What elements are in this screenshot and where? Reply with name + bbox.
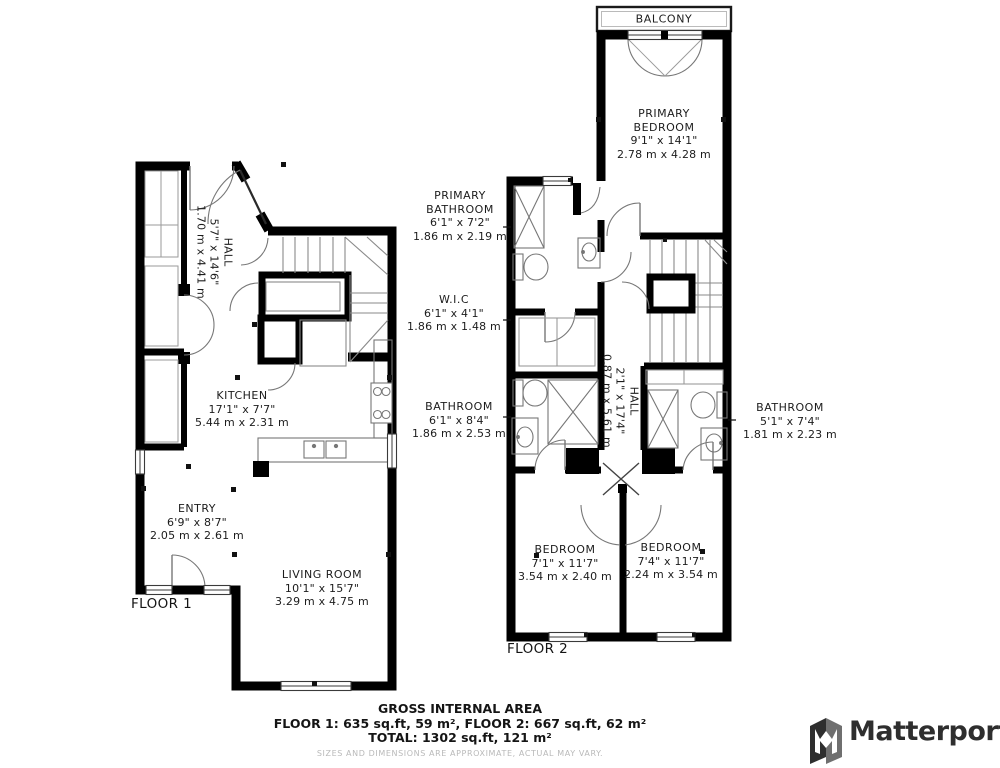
room-name: W.I.C xyxy=(407,293,501,307)
matterport-wordmark: Matterport xyxy=(849,716,1000,747)
room-label-hall-floor2: HALL 2'1" x 17'4" 0.87 m x 5.61 m xyxy=(600,341,641,461)
room-dim-imperial: 2'1" x 17'4" xyxy=(613,341,627,461)
room-dim-metric: 3.54 m x 2.40 m xyxy=(518,570,612,584)
room-label-living-room: LIVING ROOM 10'1" x 15'7" 3.29 m x 4.75 … xyxy=(275,568,369,609)
room-label-bathroom-left: BATHROOM 6'1" x 8'4" 1.86 m x 2.53 m xyxy=(412,400,506,441)
room-name: BEDROOM xyxy=(624,541,718,555)
room-dim-imperial: 6'1" x 8'4" xyxy=(412,413,506,427)
room-label-hall-floor1: HALL 5'7" x 14'6" 1.70 m x 4.41 m xyxy=(194,192,235,312)
room-dim-metric: 1.86 m x 1.48 m xyxy=(407,320,501,334)
room-dim-imperial: 7'1" x 11'7" xyxy=(518,556,612,570)
room-name: BATHROOM xyxy=(412,400,506,414)
balcony-label: BALCONY xyxy=(636,13,693,26)
room-dim-metric: 2.24 m x 3.54 m xyxy=(624,568,718,582)
room-dim-imperial: 6'1" x 4'1" xyxy=(407,306,501,320)
room-dim-imperial: 6'9" x 8'7" xyxy=(150,515,244,529)
room-dim-metric: 2.05 m x 2.61 m xyxy=(150,529,244,543)
room-name: PRIMARY BATHROOM xyxy=(416,189,504,216)
floor2-label: FLOOR 2 xyxy=(507,641,568,657)
room-dim-metric: 1.86 m x 2.53 m xyxy=(412,427,506,441)
room-label-kitchen: KITCHEN 17'1" x 7'7" 5.44 m x 2.31 m xyxy=(195,389,289,430)
room-dim-imperial: 17'1" x 7'7" xyxy=(195,402,289,416)
matterport-branding: Matterport xyxy=(806,716,1000,747)
gross-internal-area-summary: GROSS INTERNAL AREA FLOOR 1: 635 sq.ft, … xyxy=(274,702,646,746)
room-name: BATHROOM xyxy=(743,401,837,415)
summary-total: TOTAL: 1302 sq.ft, 121 m² xyxy=(274,731,646,746)
room-dim-metric: 1.70 m x 4.41 m xyxy=(194,192,208,312)
room-dim-metric: 2.78 m x 4.28 m xyxy=(617,148,711,162)
room-name: HALL xyxy=(221,192,235,312)
room-dim-imperial: 5'1" x 7'4" xyxy=(743,414,837,428)
room-label-bedroom-left: BEDROOM 7'1" x 11'7" 3.54 m x 2.40 m xyxy=(518,543,612,584)
room-name: HALL xyxy=(627,341,641,461)
room-dim-metric: 5.44 m x 2.31 m xyxy=(195,416,289,430)
floor-plan-page: BALCONY PRIMARY BEDROOM 9'1" x 14'1" 2.7… xyxy=(0,0,1000,768)
floor1-label: FLOOR 1 xyxy=(131,596,192,612)
floor2-stairs xyxy=(650,240,727,362)
room-dim-metric: 0.87 m x 5.61 m xyxy=(600,341,614,461)
disclaimer-text: SIZES AND DIMENSIONS ARE APPROXIMATE, AC… xyxy=(317,749,603,758)
room-dim-metric: 1.86 m x 2.19 m xyxy=(413,230,507,244)
room-name: LIVING ROOM xyxy=(275,568,369,582)
room-label-primary-bathroom: PRIMARY BATHROOM 6'1" x 7'2" 1.86 m x 2.… xyxy=(413,189,507,243)
room-label-entry: ENTRY 6'9" x 8'7" 2.05 m x 2.61 m xyxy=(150,502,244,543)
room-dim-imperial: 5'7" x 14'6" xyxy=(207,192,221,312)
room-dim-imperial: 7'4" x 11'7" xyxy=(624,554,718,568)
room-label-primary-bedroom: PRIMARY BEDROOM 9'1" x 14'1" 2.78 m x 4.… xyxy=(617,107,711,161)
floor-plan-canvas xyxy=(0,0,1000,768)
room-dim-metric: 3.29 m x 4.75 m xyxy=(275,595,369,609)
room-dim-imperial: 6'1" x 7'2" xyxy=(413,216,507,230)
room-dim-imperial: 9'1" x 14'1" xyxy=(617,134,711,148)
room-label-wic: W.I.C 6'1" x 4'1" 1.86 m x 1.48 m xyxy=(407,293,501,334)
room-name: PRIMARY BEDROOM xyxy=(620,107,708,134)
room-dim-metric: 1.81 m x 2.23 m xyxy=(743,428,837,442)
room-name: ENTRY xyxy=(150,502,244,516)
room-label-bedroom-right: BEDROOM 7'4" x 11'7" 2.24 m x 3.54 m xyxy=(624,541,718,582)
summary-floors: FLOOR 1: 635 sq.ft, 59 m², FLOOR 2: 667 … xyxy=(274,717,646,732)
room-dim-imperial: 10'1" x 15'7" xyxy=(275,581,369,595)
room-name: BEDROOM xyxy=(518,543,612,557)
summary-title: GROSS INTERNAL AREA xyxy=(274,702,646,717)
room-name: KITCHEN xyxy=(195,389,289,403)
floor1-closets xyxy=(145,171,178,442)
room-label-bathroom-right: BATHROOM 5'1" x 7'4" 1.81 m x 2.23 m xyxy=(743,401,837,442)
